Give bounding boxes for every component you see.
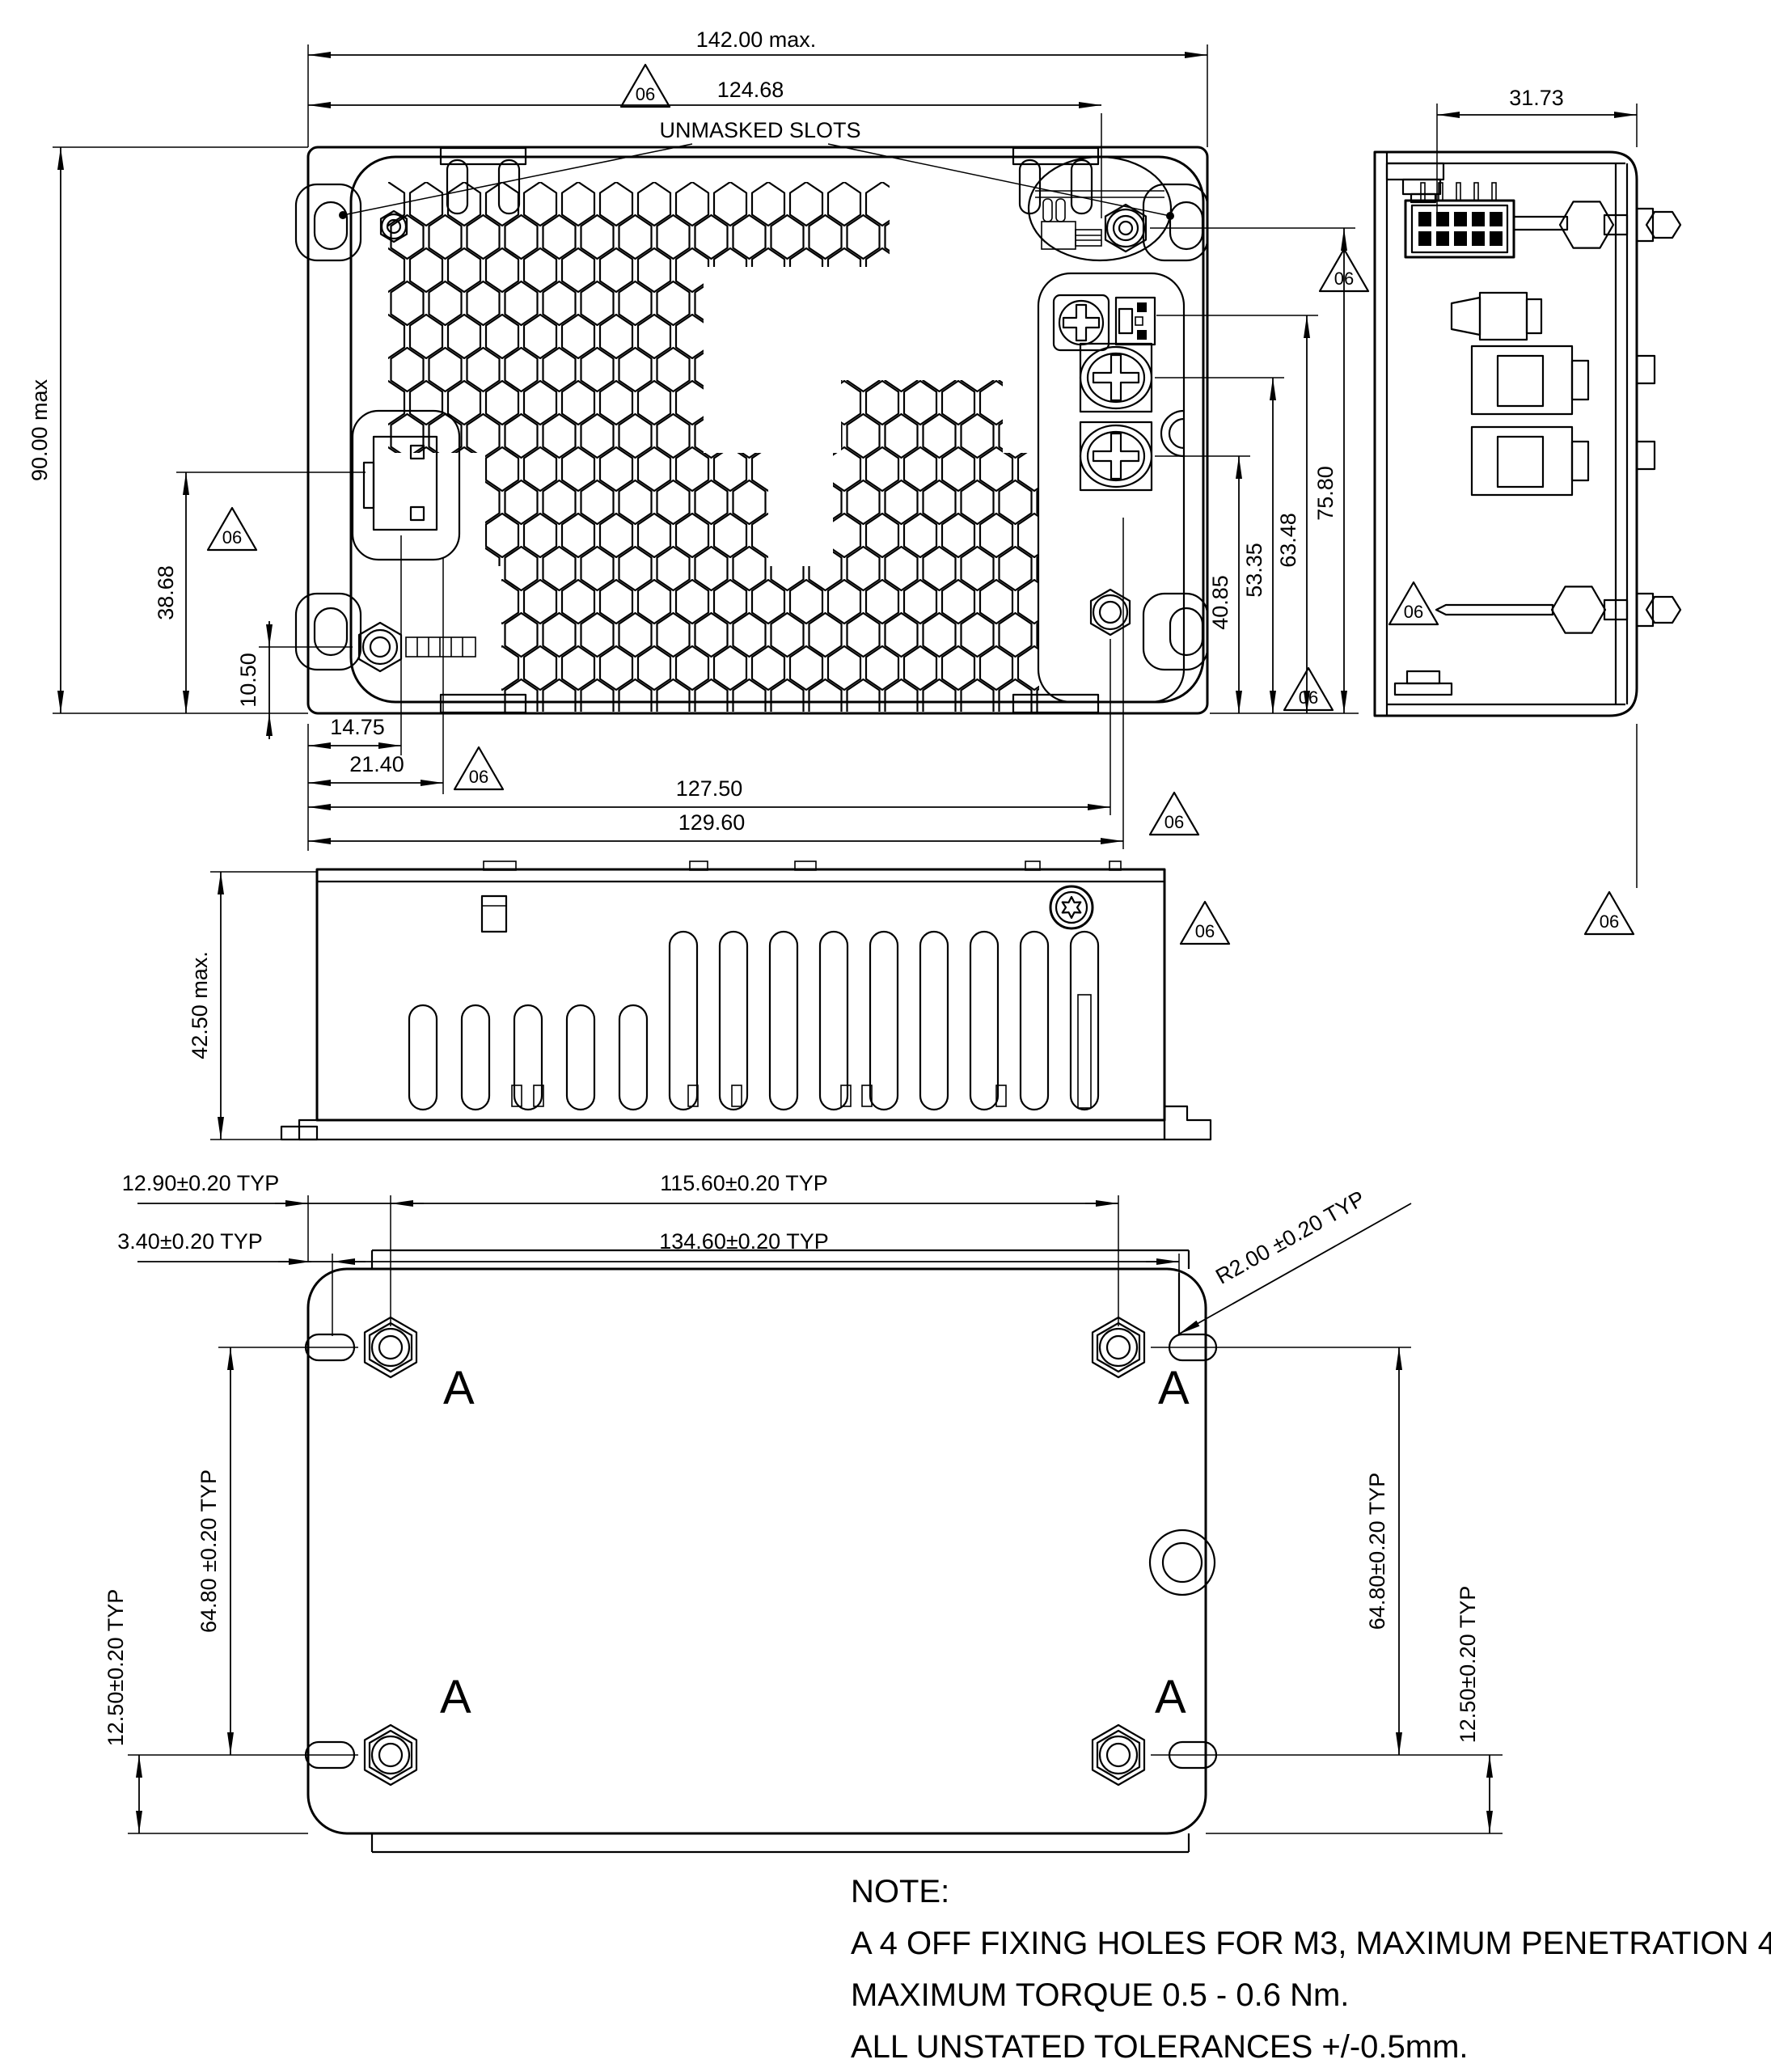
bottom-flange-bands <box>372 1250 1189 1852</box>
end-fuse-holder <box>1387 163 1443 202</box>
hole-label-a3: A <box>440 1671 471 1723</box>
dim-hole-span-y-left: 64.80 ±0.20 TYP <box>197 1469 221 1633</box>
bottom-dimensions: 12.90±0.20 TYP 115.60±0.20 TYP 3.40±0.20… <box>104 1171 1503 1833</box>
svg-text:06: 06 <box>1164 812 1184 832</box>
dim-connector-x: 14.75 <box>330 715 385 739</box>
connector-recess <box>353 411 459 560</box>
hole-label-a1: A <box>443 1362 475 1414</box>
dim-connector-x2: 21.40 <box>349 752 404 776</box>
dim-chain-4: 75.80 <box>1313 466 1338 521</box>
mounting-slot-bottom-left <box>315 608 347 655</box>
dim-chain-3: 63.48 <box>1276 513 1300 568</box>
label-unmasked-slots: UNMASKED SLOTS <box>659 118 860 142</box>
standoff-bottom <box>1436 586 1627 632</box>
side-component <box>482 896 506 932</box>
earth-stud-icon <box>359 623 476 671</box>
bolt-protrusion-bottom <box>1637 594 1680 626</box>
note-line-3: ALL UNSTATED TOLERANCES +/-0.5mm. <box>851 2029 1469 2065</box>
side-view: 42.50 max. 06 <box>188 861 1229 1140</box>
engineering-drawing-sheet: 142.00 max. 124.68 06 UNMASKED SLOTS 90.… <box>0 0 1771 2072</box>
dim-nut-y: 10.50 <box>236 653 260 708</box>
dim-hole-span-x: 115.60±0.20 TYP <box>660 1171 827 1195</box>
dim-chain-2: 53.35 <box>1242 543 1266 598</box>
terminal-screw-top <box>1080 344 1152 412</box>
dim-hole-to-edge-right: 12.50±0.20 TYP <box>1456 1586 1480 1743</box>
fixing-hole-a1 <box>365 1317 416 1377</box>
aux-connector <box>364 437 437 530</box>
side-vent-slots <box>409 932 1098 1110</box>
dim-edge-to-hole: 12.90±0.20 TYP <box>122 1171 279 1195</box>
dim-connector-y: 38.68 <box>154 565 178 620</box>
fixing-hole-a3 <box>365 1725 416 1785</box>
note-line-2: MAXIMUM TORQUE 0.5 - 0.6 Nm. <box>851 1977 1349 2013</box>
torx-screw-icon <box>1050 886 1093 928</box>
terminal-recess <box>1038 273 1184 702</box>
bottom-view: A A A A 12.90±0.20 TYP 115.60±0.20 TYP 3… <box>104 1171 1503 1852</box>
svg-text:06: 06 <box>1299 687 1318 708</box>
dim-side-height: 42.50 max. <box>188 951 212 1059</box>
plan-dimensions: 142.00 max. 124.68 06 UNMASKED SLOTS 90.… <box>27 27 1368 851</box>
end-boss-bottom-left <box>1395 671 1452 695</box>
dim-terminal-x: 129.60 <box>678 810 746 835</box>
end-view: 06 31.73 06 <box>1375 86 1680 934</box>
standoff-top <box>1514 201 1627 247</box>
cable-cutout <box>1161 411 1184 456</box>
chassis-screw-icon <box>1091 590 1130 635</box>
plan-view: 142.00 max. 124.68 06 UNMASKED SLOTS 90.… <box>27 27 1368 851</box>
dim-edge-to-slot: 3.40±0.20 TYP <box>117 1229 262 1254</box>
boss-screw-icon <box>1105 205 1146 252</box>
hole-label-a4: A <box>1155 1671 1186 1723</box>
svg-text:06: 06 <box>1334 269 1354 289</box>
trim-pot-icon <box>1054 295 1109 350</box>
dim-plate-width: 134.60±0.20 TYP <box>659 1229 828 1254</box>
fixing-hole-a2 <box>1093 1317 1144 1377</box>
mounting-slot-bottom-right <box>1170 608 1203 655</box>
svg-text:06: 06 <box>1195 921 1215 941</box>
bolt-protrusion-top <box>1637 209 1680 241</box>
honeycomb-vent-pattern <box>372 182 1070 723</box>
dim-connector-offset: 31.73 <box>1509 86 1564 110</box>
mounting-slot-top-left <box>315 202 347 249</box>
dim-hole-to-edge-left: 12.50±0.20 TYP <box>104 1589 128 1746</box>
dim-plan-width: 142.00 max. <box>696 27 817 52</box>
dim-hole-span-y-right: 64.80±0.20 TYP <box>1365 1473 1389 1630</box>
note-title: NOTE: <box>851 1874 949 1909</box>
svg-text:06: 06 <box>1600 911 1619 932</box>
terminal-screw-bottom <box>1080 422 1152 490</box>
dim-screw-x: 127.50 <box>676 776 743 801</box>
dim-corner-radius: R2.00 ±0.20 TYP <box>1211 1186 1369 1289</box>
svg-text:06: 06 <box>222 527 242 548</box>
note-line-1: A 4 OFF FIXING HOLES FOR M3, MAXIMUM PEN… <box>851 1926 1771 1961</box>
svg-text:06: 06 <box>1404 602 1423 622</box>
cover-screw-icon <box>381 211 407 242</box>
hole-label-a2: A <box>1158 1362 1190 1414</box>
dim-chain-1: 40.85 <box>1208 575 1232 630</box>
mounting-slot-top-right <box>1170 202 1203 249</box>
svg-text:06: 06 <box>469 767 488 787</box>
input-boss <box>1029 157 1171 260</box>
fixing-hole-a4 <box>1093 1725 1144 1785</box>
end-plugs <box>1452 293 1655 495</box>
drawing-svg: 142.00 max. 124.68 06 UNMASKED SLOTS 90.… <box>0 0 1771 2072</box>
signal-connector <box>1116 298 1155 345</box>
dim-slot-span: 124.68 <box>717 78 784 102</box>
dim-plan-depth: 90.00 max <box>27 378 52 481</box>
svg-text:06: 06 <box>636 84 655 104</box>
side-dimensions: 42.50 max. 06 <box>188 872 1229 1140</box>
note-block: NOTE: A 4 OFF FIXING HOLES FOR M3, MAXIM… <box>851 1874 1771 2065</box>
